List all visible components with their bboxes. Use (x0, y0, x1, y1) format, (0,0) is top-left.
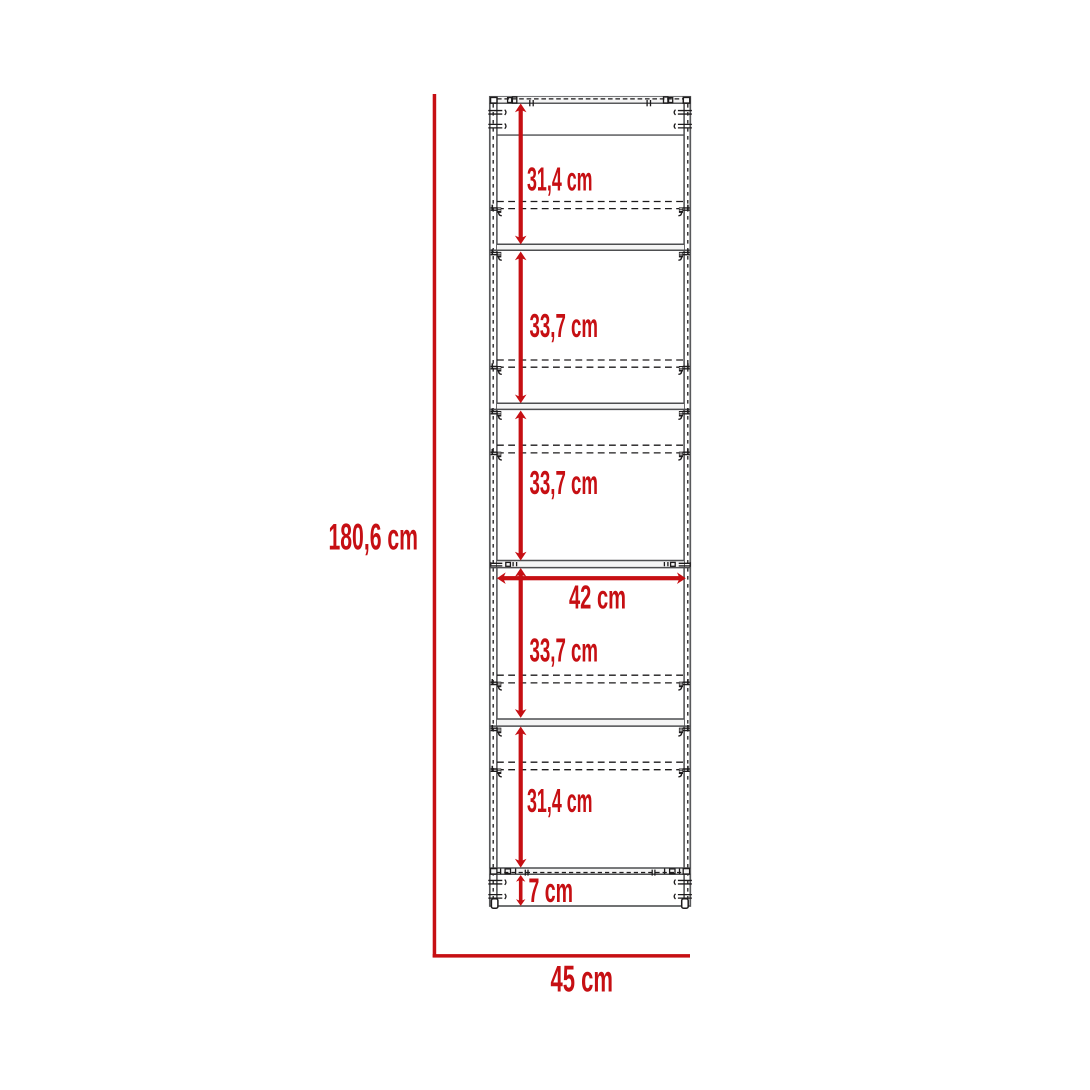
svg-text:180,6 cm: 180,6 cm (329, 517, 419, 558)
svg-text:33,7 cm: 33,7 cm (530, 632, 599, 669)
svg-text:33,7 cm: 33,7 cm (530, 465, 599, 502)
svg-text:42 cm: 42 cm (569, 579, 626, 616)
svg-text:31,4 cm: 31,4 cm (527, 783, 593, 820)
svg-text:33,7 cm: 33,7 cm (530, 308, 599, 345)
svg-text:31,4 cm: 31,4 cm (527, 161, 593, 198)
svg-text:7 cm: 7 cm (529, 872, 574, 910)
svg-text:45 cm: 45 cm (551, 959, 614, 1000)
